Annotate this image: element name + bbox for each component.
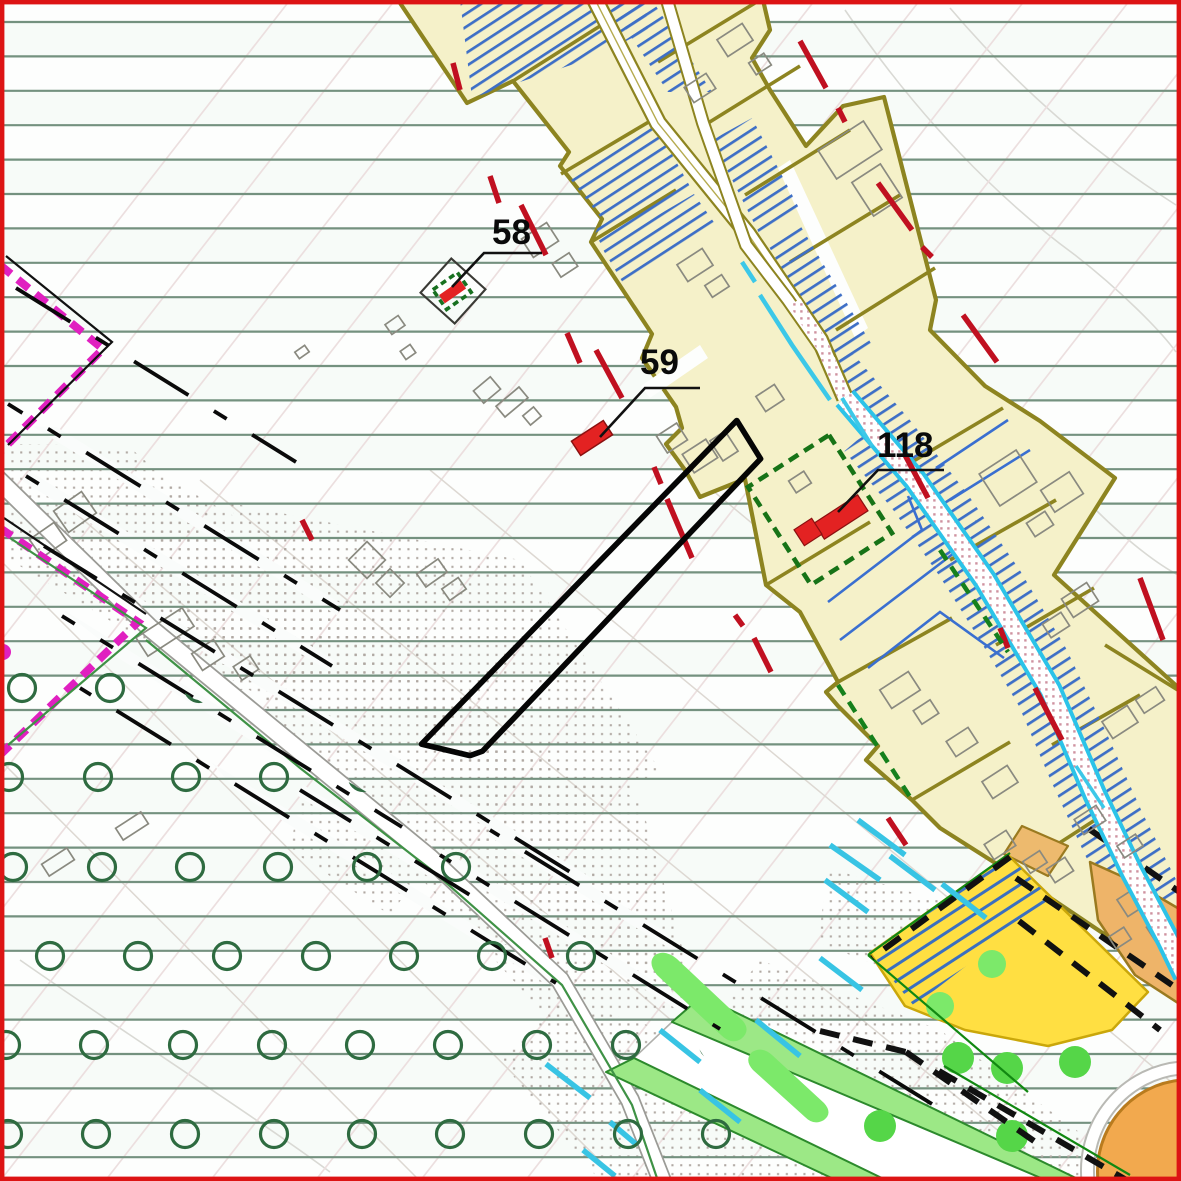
svg-text:118: 118 <box>877 426 933 465</box>
svg-text:58: 58 <box>492 213 531 252</box>
svg-text:59: 59 <box>640 343 679 382</box>
